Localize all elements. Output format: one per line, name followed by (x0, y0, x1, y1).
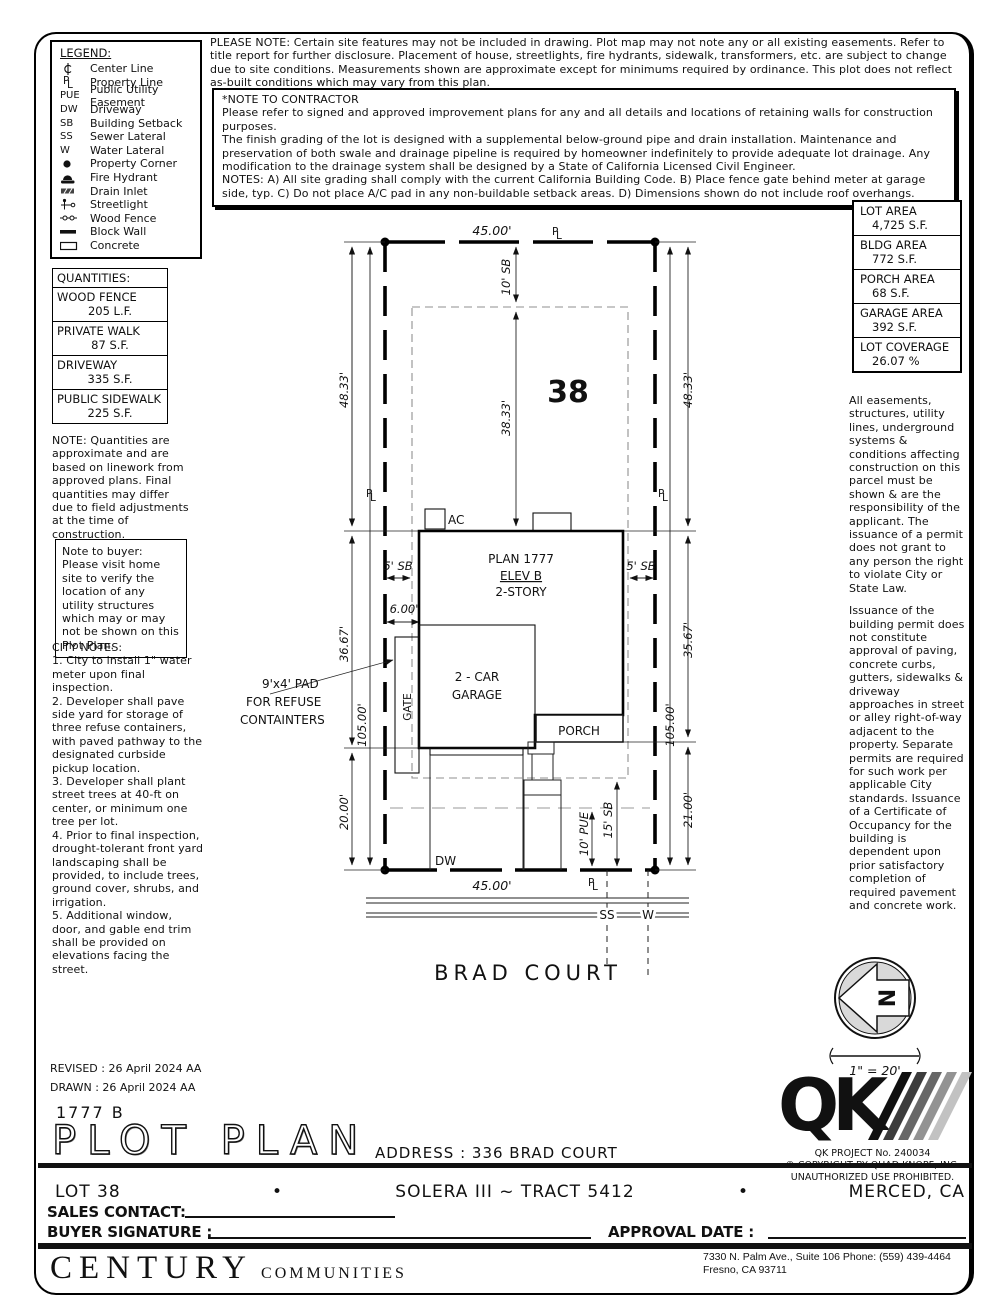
property-corner-icon (60, 157, 90, 171)
table-row: WOOD FENCE205 L.F. (53, 288, 167, 322)
divider (38, 1163, 972, 1168)
table-row: PUBLIC SIDEWALK225 S.F. (53, 390, 167, 423)
bay-window (533, 513, 571, 531)
approval-date-line (768, 1237, 966, 1239)
legend-label: Drain Inlet (90, 185, 148, 198)
builder-address-line2: Fresno, CA 93711 (703, 1264, 951, 1277)
qty-label: PUBLIC SIDEWALK (57, 392, 163, 406)
table-row: LOT COVERAGE26.07 % (854, 338, 960, 371)
plan-name: PLAN 1777 (488, 552, 554, 566)
area-label: PORCH AREA (860, 272, 956, 286)
street-name: BRAD COURT (434, 961, 622, 985)
area-value: 26.07 % (860, 354, 956, 368)
gate-label: GATE (402, 693, 414, 721)
svg-text:L: L (556, 230, 562, 242)
builder-logo: CENTURYCOMMUNITIES (50, 1250, 407, 1287)
plan-elev: ELEV B (500, 569, 542, 583)
refuse-label-2: FOR REFUSE (246, 695, 321, 709)
north-arrow: N 1" = 20' (823, 952, 928, 1077)
buyer-signature-line (208, 1237, 591, 1239)
qty-value: 205 L.F. (57, 304, 163, 318)
bullet: • (272, 1182, 283, 1202)
qk-stripes (868, 1072, 972, 1140)
qk-logo: QK (780, 1064, 972, 1146)
dim-5sb-left: 5' SB (383, 559, 412, 573)
plot-drawing: 45.00' 45.00' 48.33' 48.33' 36.67' 35.67… (240, 220, 710, 1000)
tract-label: SOLERA III ~ TRACT 5412 (370, 1182, 660, 1202)
concrete-icon (60, 239, 90, 253)
legend-label: Property Corner (90, 157, 177, 170)
streetlight-icon (60, 198, 90, 212)
driveway-lines (430, 742, 561, 870)
dim-105-left: 105.00' (355, 703, 369, 746)
table-row: BLDG AREA772 S.F. (854, 236, 960, 270)
city-notes: CITY NOTES: 1. City to install 1" water … (52, 641, 204, 976)
refuse-label-1: 9'x4' PAD (262, 677, 319, 691)
property-line-icon: PL (60, 75, 90, 89)
please-note-text: PLEASE NOTE: Certain site features may n… (210, 36, 958, 90)
legend-row: Block Wall (60, 225, 194, 239)
quantities-table: QUANTITIES: WOOD FENCE205 L.F. PRIVATE W… (52, 268, 168, 424)
sales-contact-line (185, 1216, 395, 1218)
legend-symbol: W (60, 145, 90, 156)
qk-project-number: QK PROJECT No. 240034 (770, 1148, 975, 1160)
area-label: LOT AREA (860, 204, 956, 218)
legend-row: Drain Inlet (60, 184, 194, 198)
legend-label: Streetlight (90, 198, 148, 211)
dim-3567: 35.67' (681, 622, 695, 658)
area-label: BLDG AREA (860, 238, 956, 252)
legend-symbol: SB (60, 118, 90, 129)
block-wall-icon (60, 225, 90, 239)
legend-label: Concrete (90, 239, 140, 252)
easement-paragraph-2: Issuance of the building permit does not… (849, 604, 965, 912)
refuse-label-3: CONTAINTERS (240, 713, 325, 727)
approval-date-label: APPROVAL DATE : (608, 1223, 754, 1241)
ac-label: AC (448, 513, 464, 527)
builder-name: CENTURY (50, 1250, 253, 1286)
drawn-date: DRAWN : 26 April 2024 AA (50, 1081, 195, 1094)
page-title: PLOT PLAN (52, 1118, 369, 1164)
qty-label: PRIVATE WALK (57, 324, 163, 338)
contractor-note-box: *NOTE TO CONTRACTOR Please refer to sign… (212, 88, 956, 207)
driveway-label: DW (435, 854, 456, 868)
legend-row: Center Line (60, 62, 194, 76)
north-letter: N (876, 989, 901, 1007)
area-label: LOT COVERAGE (860, 340, 956, 354)
table-row: GARAGE AREA392 S.F. (854, 304, 960, 338)
dim-10pue: 10' PUE (577, 811, 591, 856)
qty-value: 335 S.F. (57, 372, 163, 386)
lot-label: LOT 38 (55, 1182, 121, 1202)
legend-row: SS Sewer Lateral (60, 130, 194, 144)
legend-label: Block Wall (90, 225, 146, 238)
dim-2000: 20.00' (337, 794, 351, 830)
area-table: LOT AREA4,725 S.F. BLDG AREA772 S.F. POR… (852, 200, 962, 373)
builder-name-2: COMMUNITIES (261, 1265, 407, 1282)
svg-text:L: L (592, 881, 598, 893)
legend-row: Wood Fence (60, 212, 194, 226)
legend-symbol: DW (60, 104, 90, 115)
plan-story: 2-STORY (495, 585, 547, 599)
area-value: 68 S.F. (860, 286, 956, 300)
center-line-icon (60, 62, 90, 76)
bottom-dimension: 45.00' (472, 878, 511, 893)
legend-label: Wood Fence (90, 212, 156, 225)
garage-label-2: GARAGE (452, 688, 502, 702)
legend-label: Driveway (90, 103, 142, 116)
dim-10sb: 10' SB (499, 259, 513, 296)
lot-number: 38 (547, 375, 589, 410)
legend-row: Property Corner (60, 157, 194, 171)
dim-3833: 38.33' (499, 400, 513, 436)
area-label: GARAGE AREA (860, 306, 956, 320)
divider (38, 1243, 972, 1249)
drain-inlet-icon (60, 184, 90, 198)
porch-label: PORCH (558, 724, 600, 738)
address-line: ADDRESS : 336 BRAD COURT (375, 1144, 618, 1162)
sewer-label: SS (599, 908, 614, 922)
builder-address-line1: 7330 N. Palm Ave., Suite 106 Phone: (559… (703, 1251, 951, 1264)
top-dimension: 45.00' (472, 223, 511, 238)
qty-label: WOOD FENCE (57, 290, 163, 304)
svg-text:L: L (67, 79, 73, 89)
dim-2100: 21.00' (681, 792, 695, 828)
qty-value: 225 S.F. (57, 406, 163, 420)
legend-row: PUE Public Utility Easement (60, 89, 194, 103)
legend-title: LEGEND: (60, 46, 194, 60)
legend-label: Building Setback (90, 117, 182, 130)
table-row: PRIVATE WALK87 S.F. (53, 322, 167, 356)
quantities-title: QUANTITIES: (53, 269, 167, 288)
svg-text:L: L (370, 492, 376, 504)
legend-row: Fire Hydrant (60, 171, 194, 185)
dim-4833-right: 48.33' (681, 372, 695, 408)
fire-hydrant-icon (60, 171, 90, 185)
wood-fence-icon (60, 211, 90, 225)
qty-label: DRIVEWAY (57, 358, 163, 372)
easement-paragraph-1: All easements, structures, utility lines… (849, 394, 965, 595)
legend-symbol: PUE (60, 90, 90, 101)
city-label: MERCED, CA (830, 1182, 965, 1202)
legend-row: SB Building Setback (60, 116, 194, 130)
dim-4833-left: 48.33' (337, 372, 351, 408)
dim-15sb: 15' SB (601, 802, 615, 839)
water-label: W (642, 908, 654, 922)
area-value: 392 S.F. (860, 320, 956, 334)
table-row: PORCH AREA68 S.F. (854, 270, 960, 304)
builder-address: 7330 N. Palm Ave., Suite 106 Phone: (559… (703, 1251, 951, 1277)
buyer-signature-label: BUYER SIGNATURE : (47, 1223, 212, 1241)
dim-3667: 36.67' (337, 626, 351, 662)
easement-notes: All easements, structures, utility lines… (849, 394, 965, 912)
legend-symbol: SS (60, 131, 90, 142)
legend-row: Streetlight (60, 198, 194, 212)
garage-label-1: 2 - CAR (455, 670, 500, 684)
quantities-note: NOTE: Quantities are approximate and are… (52, 434, 192, 541)
legend-label: Fire Hydrant (90, 171, 157, 184)
sales-contact-label: SALES CONTACT: (47, 1203, 186, 1221)
scale-bar (830, 1048, 920, 1064)
dim-105-right: 105.00' (663, 703, 677, 746)
dim-600: 6.00' (390, 602, 419, 616)
svg-text:L: L (662, 492, 668, 504)
qty-value: 87 S.F. (57, 338, 163, 352)
street-lines (366, 898, 689, 917)
legend-row: W Water Lateral (60, 144, 194, 158)
legend-box: LEGEND: Center Line PL Property Line PUE… (50, 40, 202, 259)
ac-pad (425, 509, 445, 529)
legend-label: Water Lateral (90, 144, 164, 157)
area-value: 772 S.F. (860, 252, 956, 266)
table-row: LOT AREA4,725 S.F. (854, 202, 960, 236)
legend-label: Center Line (90, 62, 153, 75)
bullet: • (738, 1182, 749, 1202)
table-row: DRIVEWAY335 S.F. (53, 356, 167, 390)
area-value: 4,725 S.F. (860, 218, 956, 232)
legend-label: Sewer Lateral (90, 130, 166, 143)
dim-5sb-right: 5' SB (626, 559, 655, 573)
revised-date: REVISED : 26 April 2024 AA (50, 1062, 201, 1075)
legend-row: Concrete (60, 239, 194, 253)
